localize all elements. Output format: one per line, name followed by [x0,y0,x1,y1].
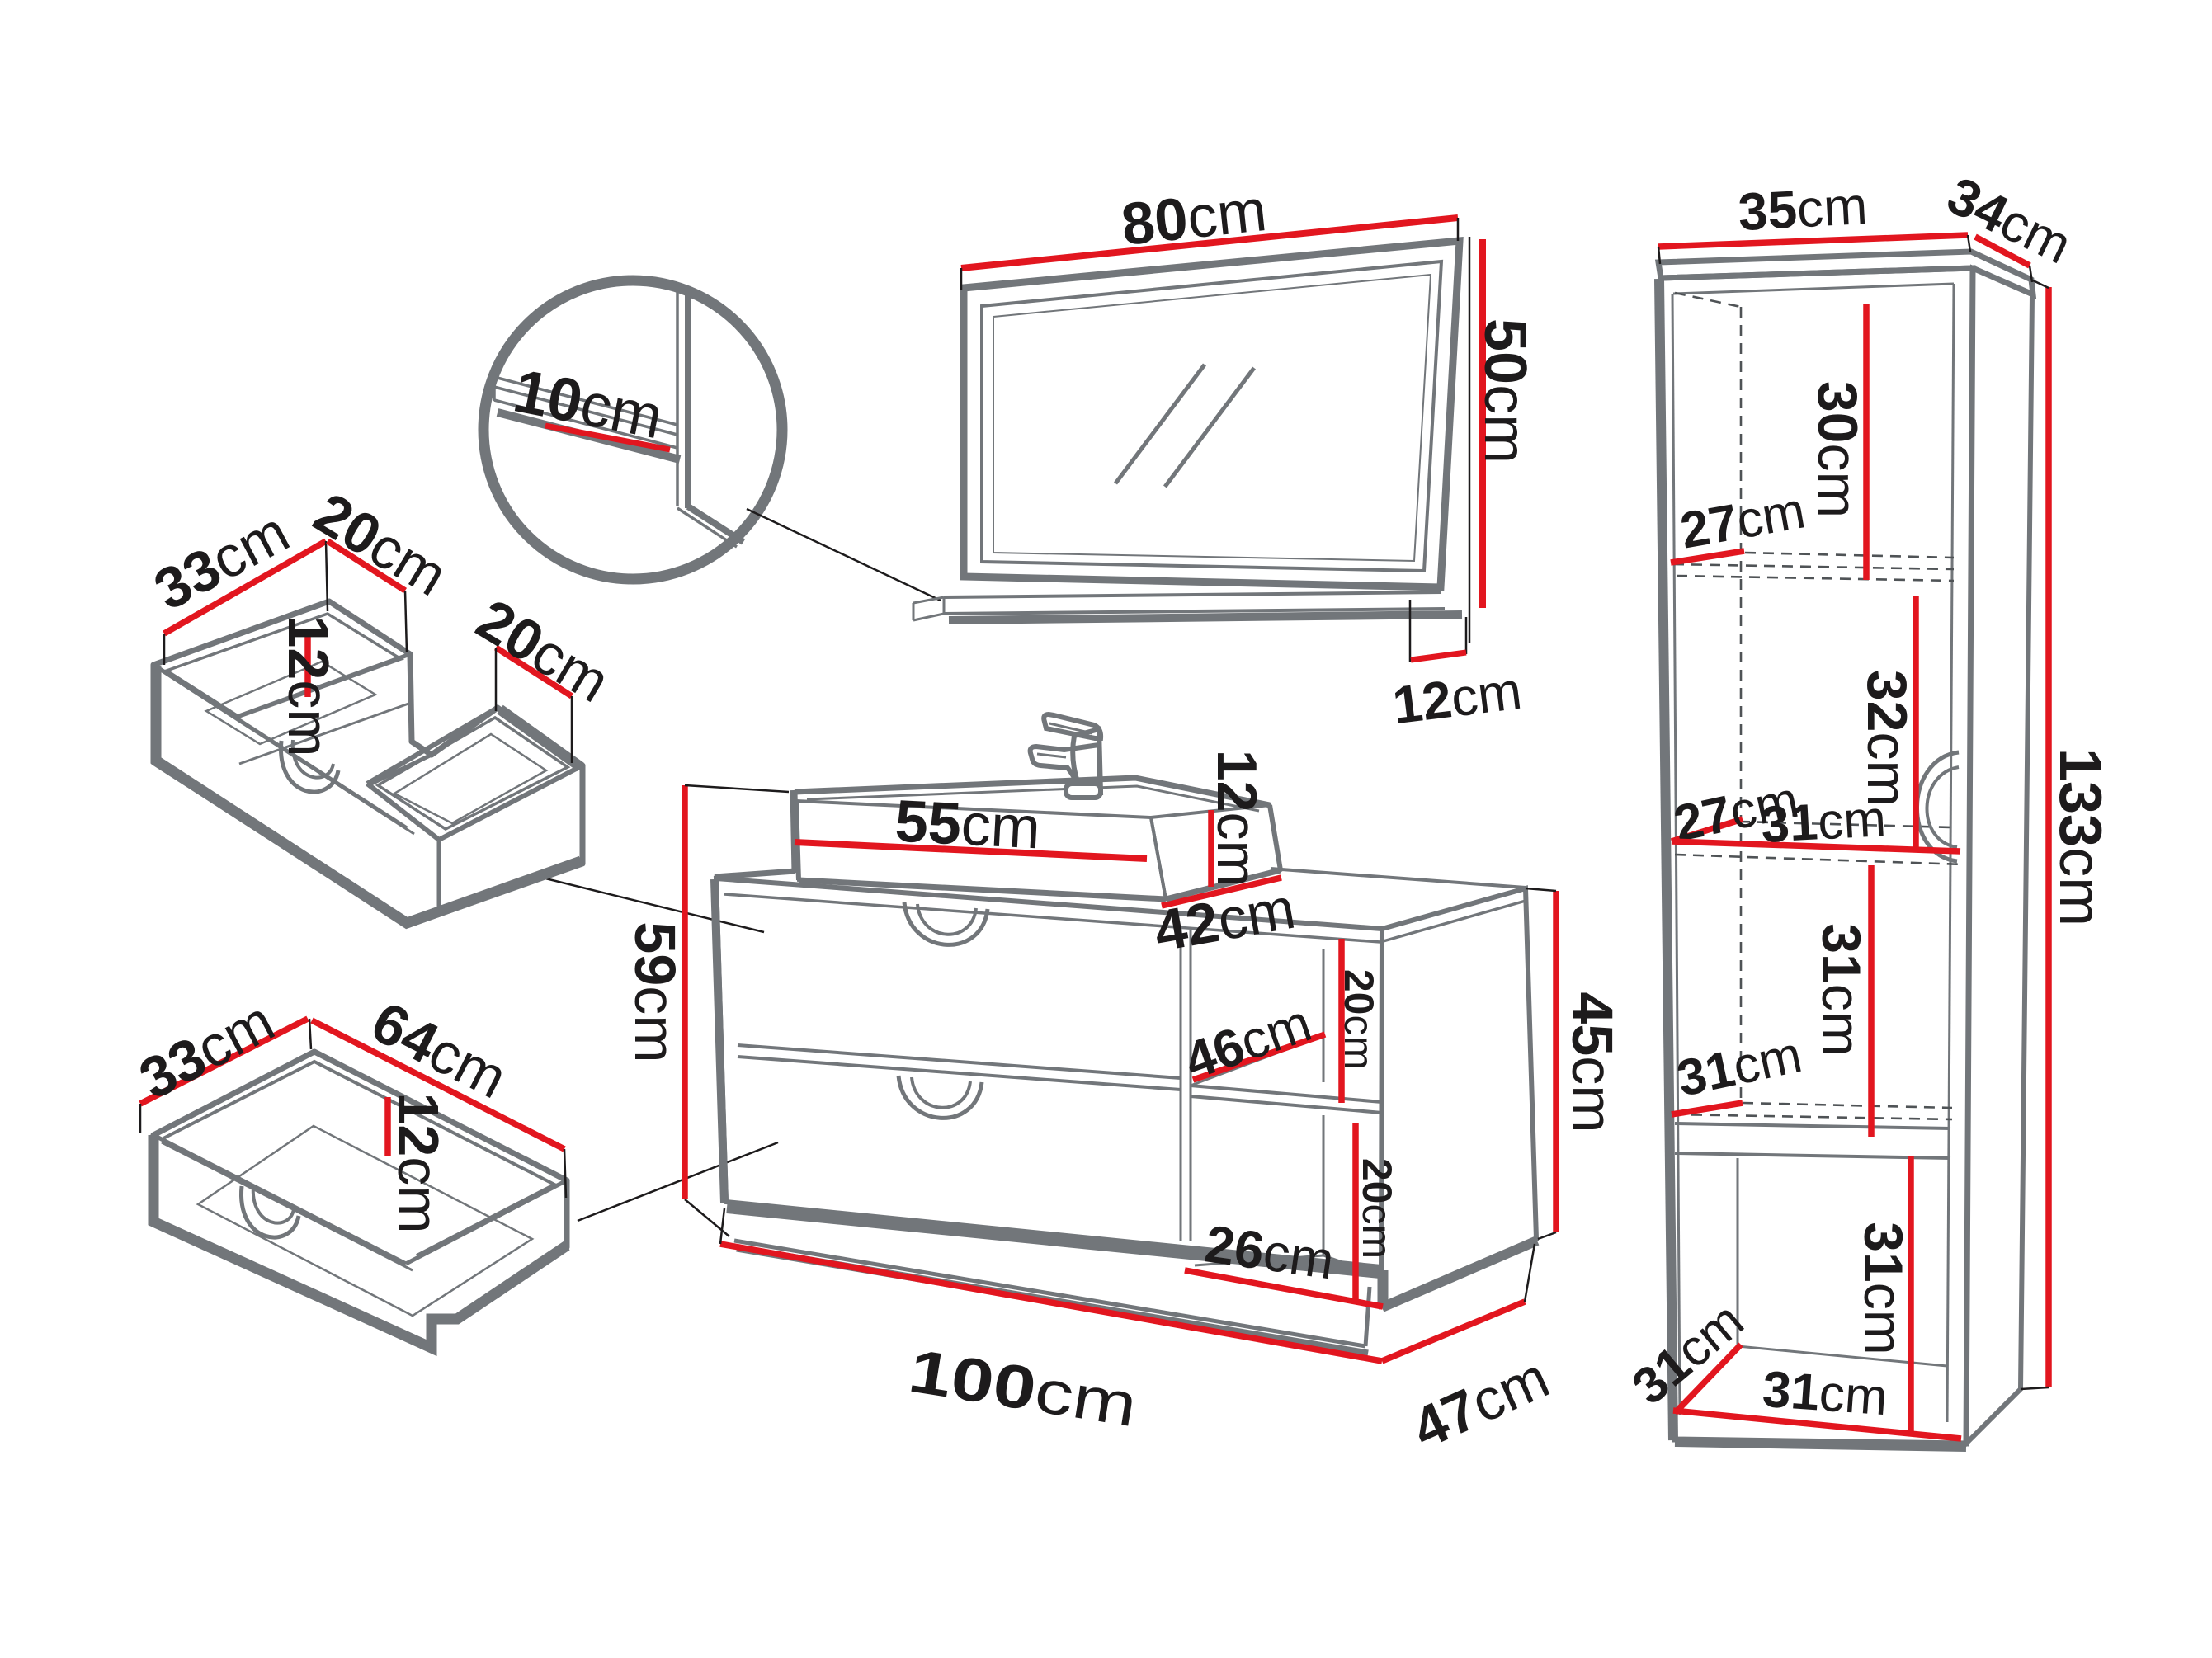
svg-text:12cm: 12cm [276,615,341,756]
svg-text:31cm: 31cm [1853,1222,1914,1354]
svg-text:20cm: 20cm [1354,1158,1400,1259]
svg-text:55cm: 55cm [894,788,1042,861]
svg-text:59cm: 59cm [623,921,687,1062]
svg-text:12cm: 12cm [1205,750,1268,887]
svg-text:31cm: 31cm [1811,923,1872,1056]
svg-text:20cm: 20cm [1336,969,1382,1070]
svg-text:31cm: 31cm [1760,790,1888,854]
svg-text:12cm: 12cm [386,1092,450,1233]
svg-text:30cm: 30cm [1806,381,1869,518]
svg-text:31cm: 31cm [1761,1361,1889,1426]
svg-text:45cm: 45cm [1560,992,1625,1133]
svg-text:35cm: 35cm [1737,176,1869,242]
svg-text:32cm: 32cm [1856,670,1918,807]
svg-text:50cm: 50cm [1472,318,1538,464]
svg-text:133cm: 133cm [2047,748,2113,926]
